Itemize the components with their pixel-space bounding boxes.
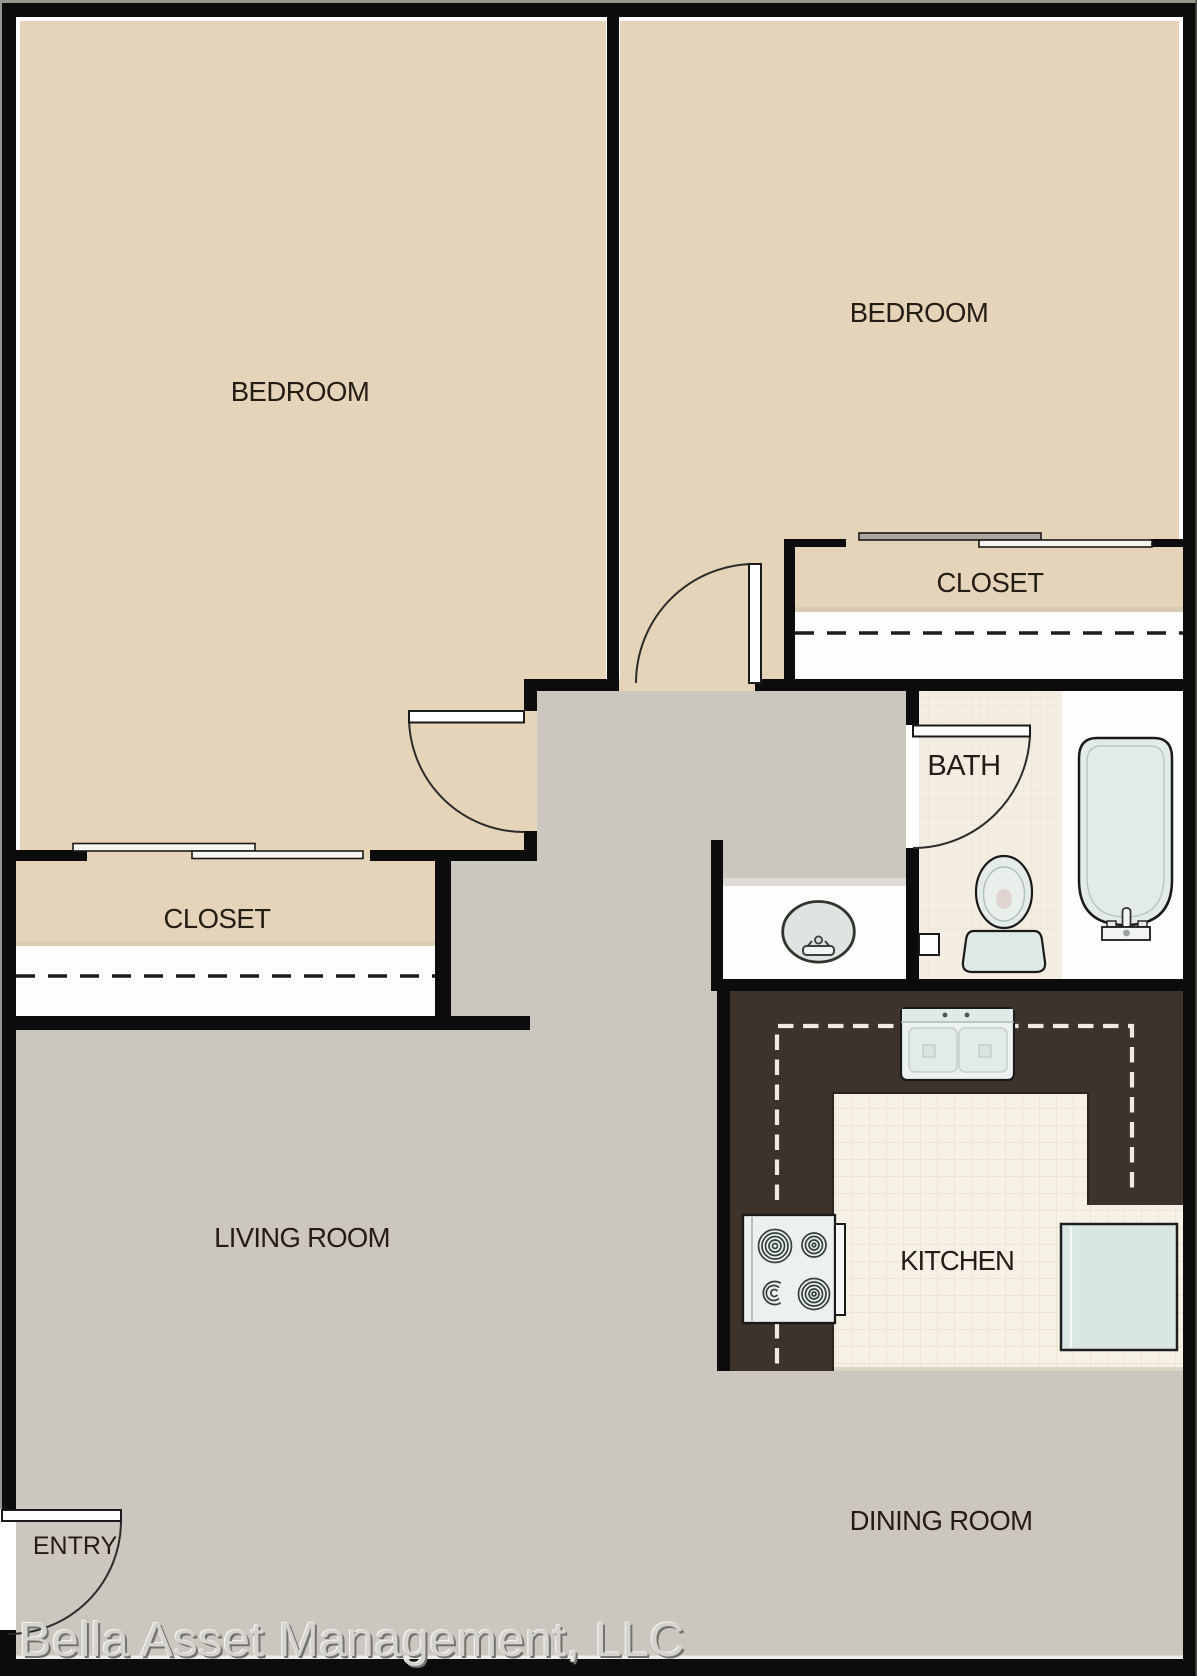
svg-text:CLOSET: CLOSET xyxy=(163,903,271,934)
svg-text:DINING ROOM: DINING ROOM xyxy=(850,1505,1033,1536)
svg-text:ENTRY: ENTRY xyxy=(33,1532,118,1560)
svg-text:CLOSET: CLOSET xyxy=(936,567,1044,598)
svg-text:BEDROOM: BEDROOM xyxy=(850,297,989,328)
svg-text:BEDROOM: BEDROOM xyxy=(231,376,370,407)
svg-text:LIVING ROOM: LIVING ROOM xyxy=(214,1222,390,1253)
svg-text:Bella Asset Management, LLC: Bella Asset Management, LLC xyxy=(19,1613,685,1667)
svg-text:BATH: BATH xyxy=(927,750,1000,782)
svg-text:KITCHEN: KITCHEN xyxy=(900,1245,1014,1276)
